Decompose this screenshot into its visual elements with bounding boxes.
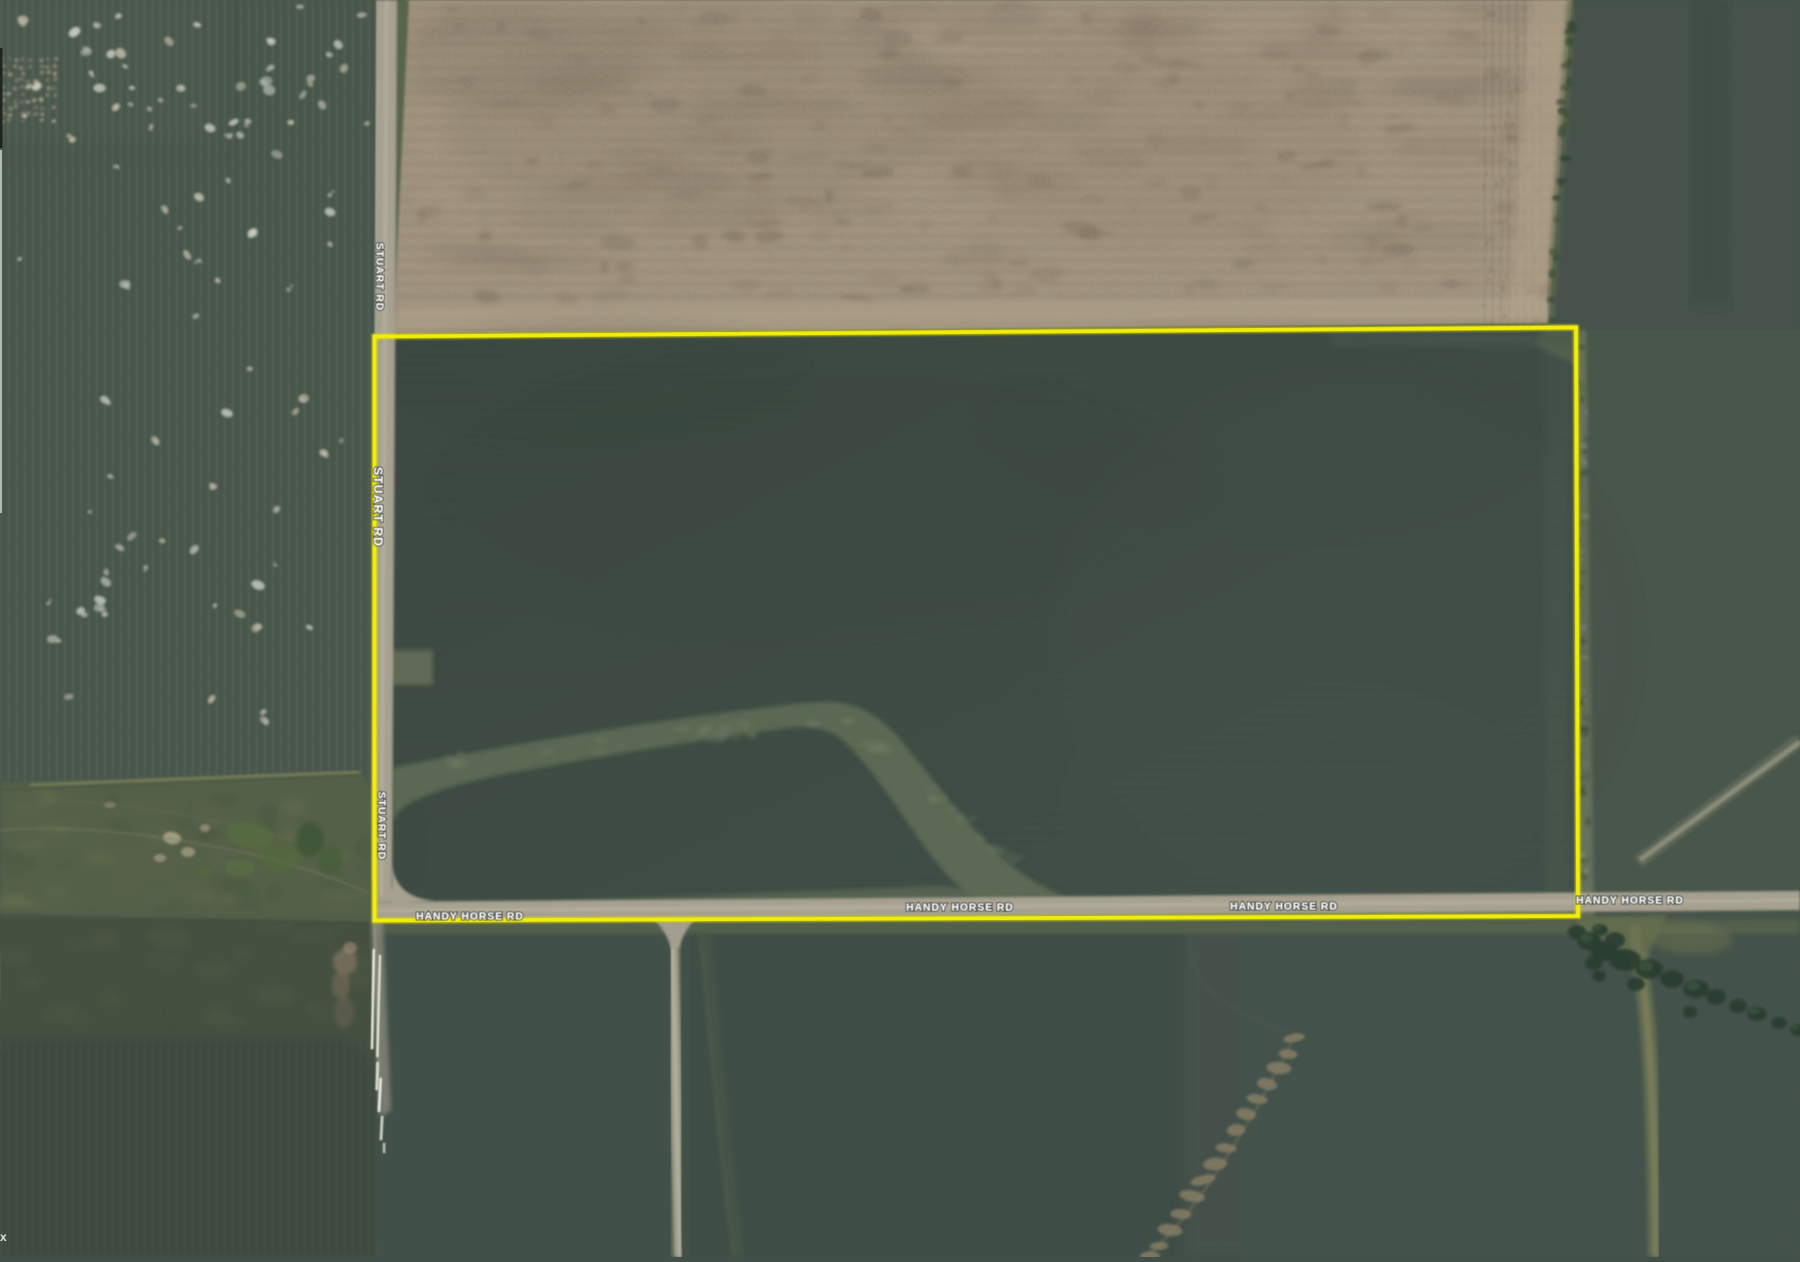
svg-text:HANDY HORSE RD: HANDY HORSE RD [1230, 902, 1338, 913]
svg-text:STUART RD: STUART RD [373, 243, 384, 312]
svg-text:HANDY HORSE RD: HANDY HORSE RD [416, 912, 524, 923]
svg-text:x: x [0, 1230, 7, 1244]
svg-text:HANDY HORSE RD: HANDY HORSE RD [1576, 896, 1684, 907]
svg-text:STUART RD: STUART RD [375, 792, 386, 861]
svg-text:HANDY HORSE RD: HANDY HORSE RD [906, 903, 1014, 914]
svg-text:STUART RD: STUART RD [371, 467, 385, 547]
